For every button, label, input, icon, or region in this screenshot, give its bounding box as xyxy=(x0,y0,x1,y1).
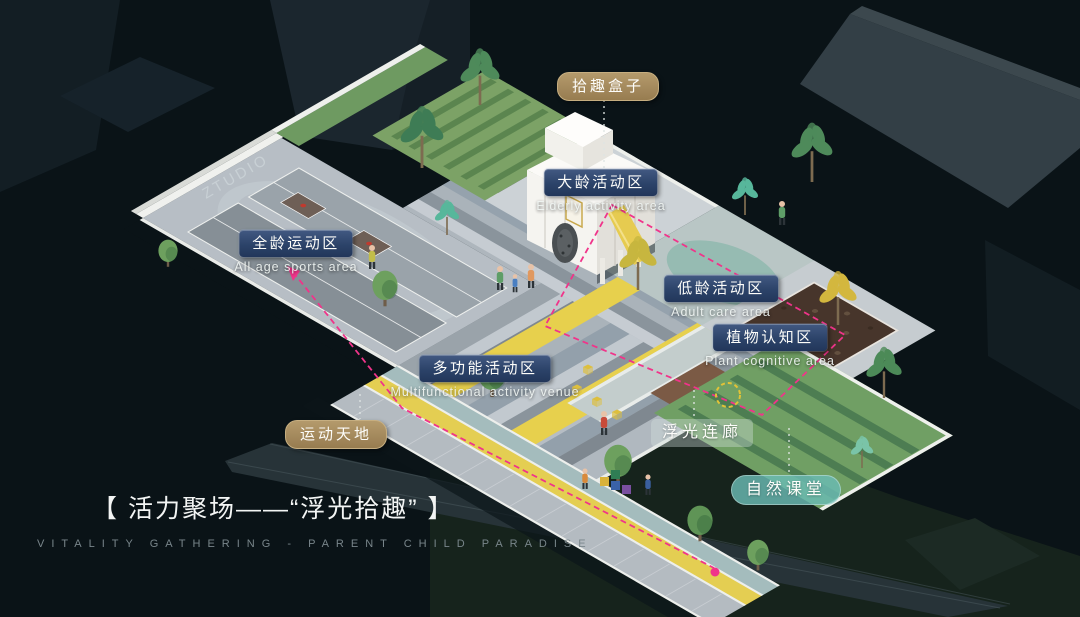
sculpture xyxy=(552,223,578,263)
label-multi-zone: 多功能活动区 Multifunctional activity venue xyxy=(390,355,579,399)
label-play-box: 拾趣盒子 xyxy=(557,72,659,101)
label-elderly-zone: 大龄活动区 Elderly activity area xyxy=(536,169,665,213)
allage-zone-chip: 全龄运动区 xyxy=(239,230,353,257)
plant-zone-chip: 植物认知区 xyxy=(713,324,827,351)
corridor-chip: 浮光连廊 xyxy=(651,419,753,447)
plant-zone-subtitle: Plant cognitive area xyxy=(705,354,835,368)
label-sports-world: 运动天地 xyxy=(285,420,387,449)
play-box-chip: 拾趣盒子 xyxy=(557,72,659,101)
label-nature-class: 自然课堂 xyxy=(731,475,841,505)
toddler-zone-chip: 低龄活动区 xyxy=(664,275,778,302)
label-allage-zone: 全龄运动区 All age sports area xyxy=(234,230,357,274)
route-end-dot xyxy=(711,568,720,577)
elderly-zone-chip: 大龄活动区 xyxy=(544,169,658,196)
multi-zone-subtitle: Multifunctional activity venue xyxy=(390,385,579,399)
toddler-zone-subtitle: Adult care area xyxy=(671,305,771,319)
label-toddler-zone: 低龄活动区 Adult care area xyxy=(664,275,778,319)
label-plant-zone: 植物认知区 Plant cognitive area xyxy=(705,324,835,368)
page-title: 【 活力聚场——“浮光拾趣” 】 xyxy=(92,489,455,525)
nature-class-chip: 自然课堂 xyxy=(731,475,841,505)
sports-world-chip: 运动天地 xyxy=(285,420,387,449)
elderly-zone-subtitle: Elderly activity area xyxy=(536,199,665,213)
multi-zone-chip: 多功能活动区 xyxy=(419,355,550,382)
label-corridor: 浮光连廊 xyxy=(651,419,753,447)
allage-zone-subtitle: All age sports area xyxy=(234,260,357,274)
page-subtitle: VITALITY GATHERING - PARENT CHILD PARADI… xyxy=(37,538,593,550)
site-plan-poster: ZTUDIO xyxy=(0,0,1080,617)
